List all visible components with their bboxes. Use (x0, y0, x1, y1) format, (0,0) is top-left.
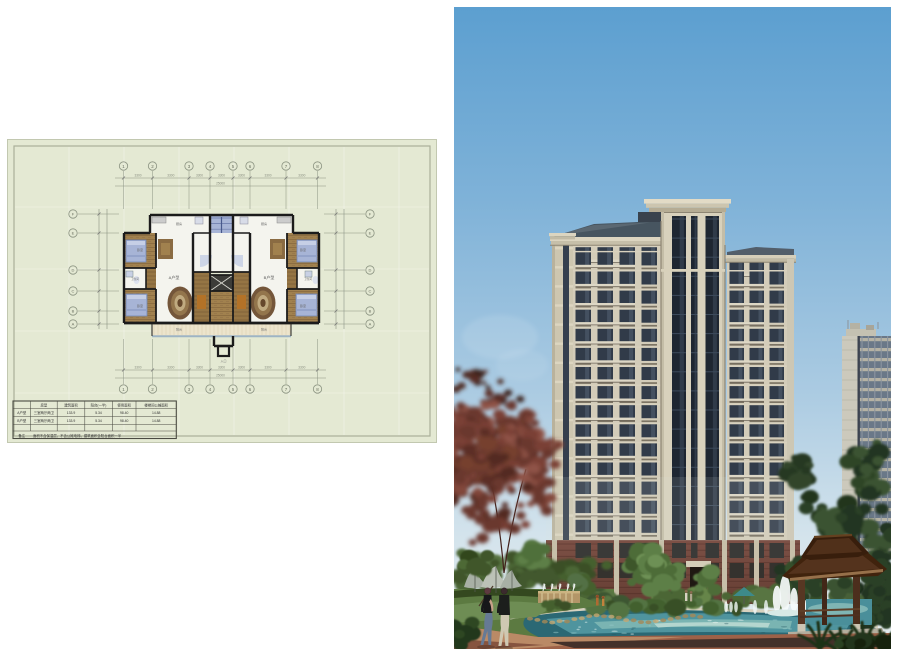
svg-text:3300: 3300 (238, 366, 245, 370)
svg-text:阳台(一半): 阳台(一半) (91, 402, 107, 407)
svg-text:3300: 3300 (298, 174, 305, 178)
svg-text:厨房: 厨房 (261, 221, 267, 226)
svg-text:卧室: 卧室 (300, 303, 306, 308)
svg-text:B户型: B户型 (264, 274, 275, 280)
svg-text:3300: 3300 (298, 366, 305, 370)
svg-text:房型: 房型 (41, 402, 48, 407)
svg-text:C: C (369, 289, 372, 294)
svg-text:A: A (72, 322, 75, 327)
svg-text:楼梯间公摊面积: 楼梯间公摊面积 (144, 402, 168, 407)
svg-text:3300: 3300 (218, 174, 225, 178)
svg-text:卧室: 卧室 (137, 247, 143, 252)
svg-text:E: E (369, 231, 372, 236)
svg-text:3300: 3300 (134, 174, 141, 178)
svg-text:B户型: B户型 (17, 418, 27, 423)
svg-text:98.40: 98.40 (120, 419, 129, 423)
svg-text:卫生间: 卫生间 (131, 277, 139, 281)
svg-text:25000: 25000 (216, 181, 225, 185)
svg-text:25000: 25000 (216, 373, 225, 377)
svg-text:厨房: 厨房 (176, 221, 182, 226)
svg-text:3300: 3300 (196, 174, 203, 178)
svg-text:3300: 3300 (264, 366, 271, 370)
svg-text:3300: 3300 (218, 366, 225, 370)
svg-text:C: C (72, 289, 75, 294)
svg-text:3300: 3300 (167, 366, 174, 370)
svg-text:面积不含保温层，不含公摊电梯，建筑面积含阳台面积一半: 面积不含保温层，不含公摊电梯，建筑面积含阳台面积一半 (33, 433, 122, 438)
svg-text:3300: 3300 (238, 174, 245, 178)
svg-text:三室两厅两卫: 三室两厅两卫 (34, 418, 55, 423)
svg-text:14.88: 14.88 (152, 411, 161, 415)
svg-text:3300: 3300 (167, 174, 174, 178)
svg-text:133.9: 133.9 (67, 411, 76, 415)
svg-text:A户型: A户型 (169, 274, 180, 280)
svg-text:98.40: 98.40 (120, 411, 129, 415)
svg-text:入口: 入口 (220, 359, 226, 363)
svg-text:E: E (72, 231, 75, 236)
svg-text:A户型: A户型 (17, 410, 27, 415)
svg-text:3300: 3300 (264, 174, 271, 178)
svg-text:A: A (369, 322, 372, 327)
svg-text:卧室: 卧室 (300, 247, 306, 252)
svg-text:阳台: 阳台 (261, 327, 267, 332)
svg-text:14.88: 14.88 (152, 419, 161, 423)
svg-text:B: B (369, 309, 372, 314)
svg-text:5.34: 5.34 (95, 411, 102, 415)
svg-text:5.34: 5.34 (95, 419, 102, 423)
svg-text:B: B (72, 309, 75, 314)
svg-text:3300: 3300 (196, 366, 203, 370)
svg-text:三室两厅两卫: 三室两厅两卫 (34, 410, 55, 415)
svg-text:卧室: 卧室 (137, 303, 143, 308)
svg-text:D: D (369, 268, 372, 273)
svg-text:D: D (72, 268, 75, 273)
svg-text:卫生间: 卫生间 (304, 277, 312, 281)
svg-text:建筑面积: 建筑面积 (64, 402, 78, 407)
svg-text:使用面积: 使用面积 (117, 402, 131, 407)
svg-text:阳台: 阳台 (176, 327, 182, 332)
svg-text:备注: 备注 (18, 433, 25, 438)
svg-text:133.9: 133.9 (67, 419, 76, 423)
svg-text:3300: 3300 (134, 366, 141, 370)
